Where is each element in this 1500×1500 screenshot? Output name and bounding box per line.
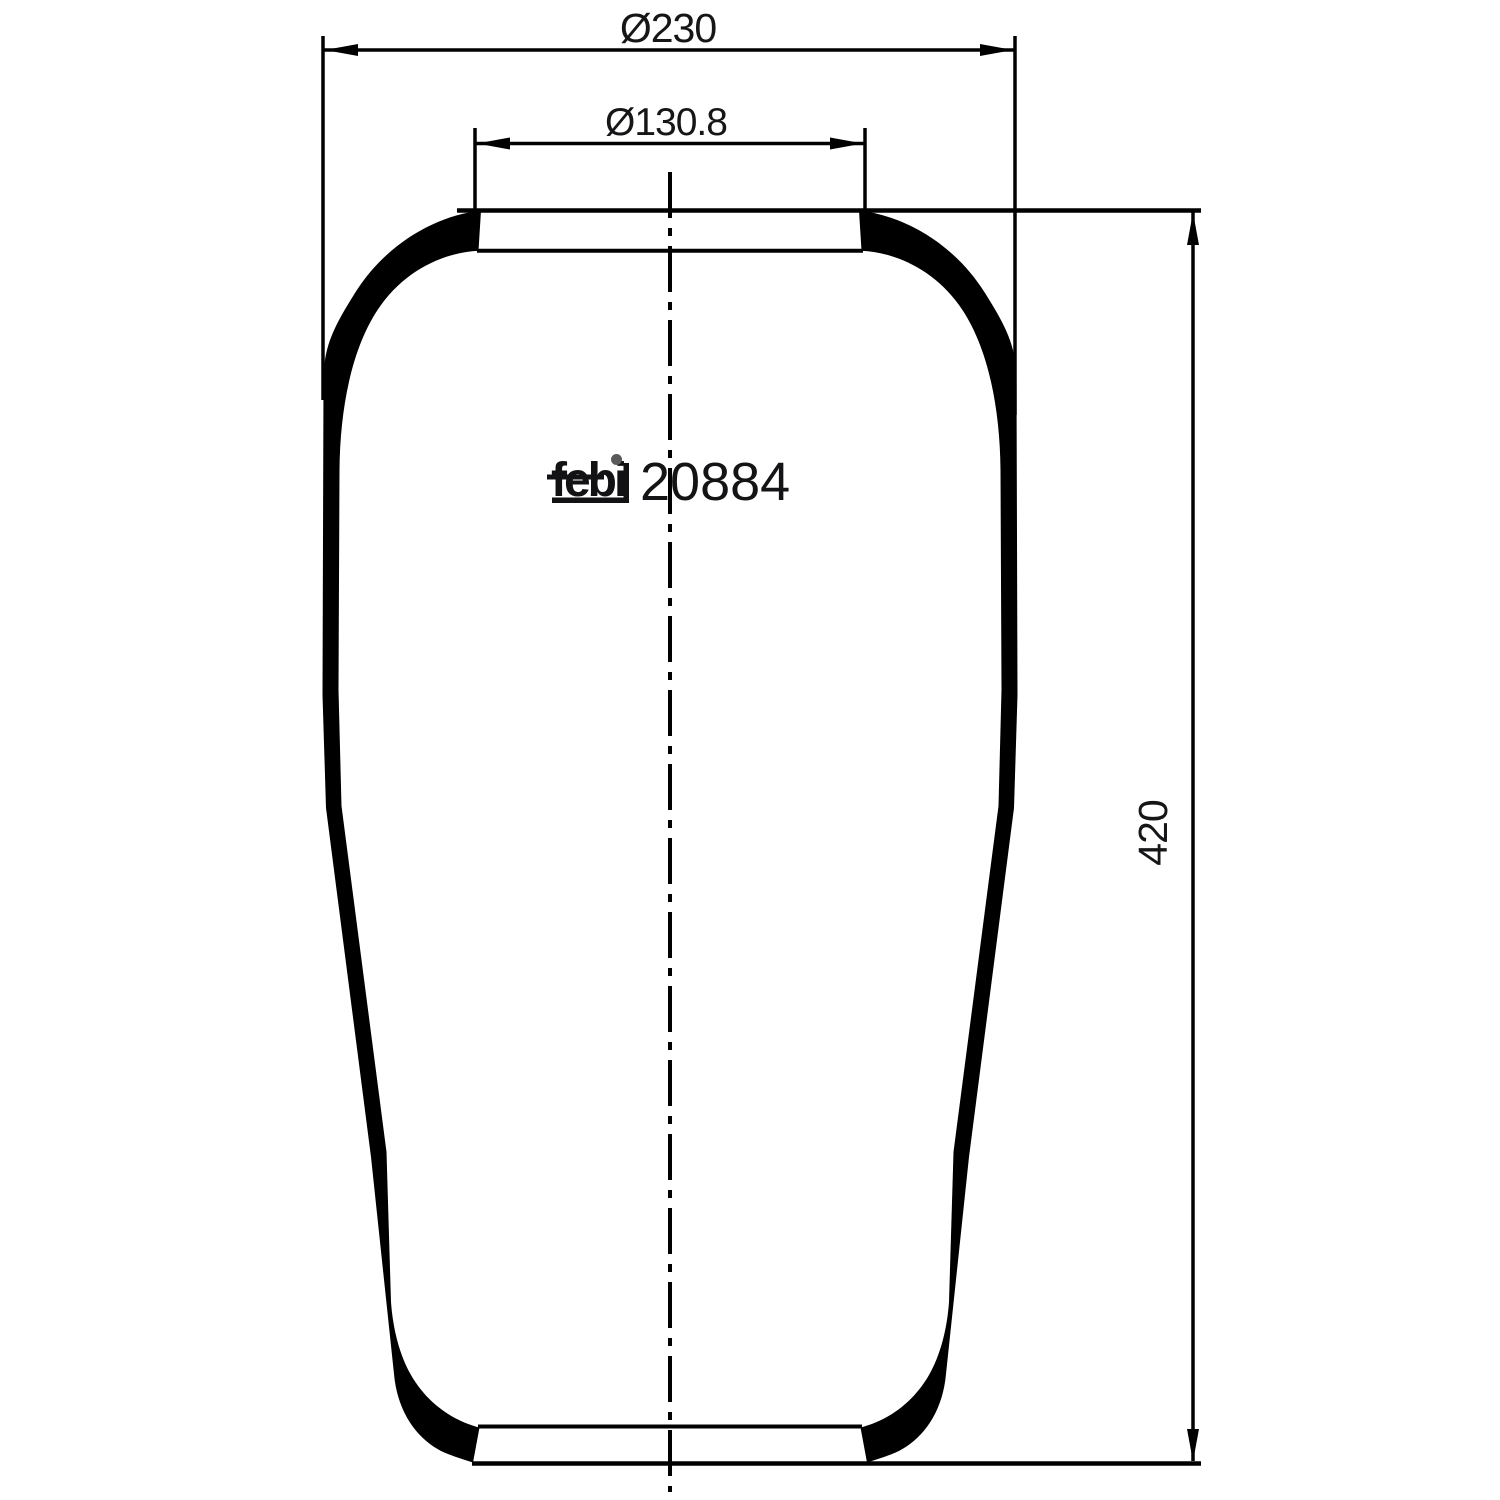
brand-and-part-number: febi 20884 (547, 452, 790, 512)
arrowhead-bottom-icon (1187, 1429, 1199, 1462)
outer-diameter-label: Ø230 (620, 5, 716, 51)
arrowhead-left-icon (325, 44, 358, 56)
febi-logo-i-dot (611, 454, 622, 465)
febi-logo-underline (552, 498, 629, 504)
drawing-canvas: Ø230 Ø130.8 420 febi (0, 0, 1500, 1500)
neck-diameter-label: Ø130.8 (605, 101, 727, 144)
bellows-outline (323, 211, 1202, 1464)
febi-logo-crossbar (547, 475, 604, 480)
dimension-height: 420 (1130, 212, 1199, 1462)
bellows-right-wall (859, 211, 1018, 1463)
arrowhead-top-icon (1187, 213, 1199, 246)
febi-logo-right-bar (624, 463, 630, 503)
bellows-left-wall (323, 211, 482, 1463)
technical-drawing-svg: Ø230 Ø130.8 420 febi (0, 0, 1500, 1500)
height-label: 420 (1130, 800, 1176, 866)
febi-logo: febi (547, 454, 629, 507)
arrowhead-right-icon (980, 44, 1013, 56)
arrowhead-right-icon (830, 138, 863, 150)
arrowhead-left-icon (477, 138, 510, 150)
part-number: 20884 (640, 452, 790, 512)
